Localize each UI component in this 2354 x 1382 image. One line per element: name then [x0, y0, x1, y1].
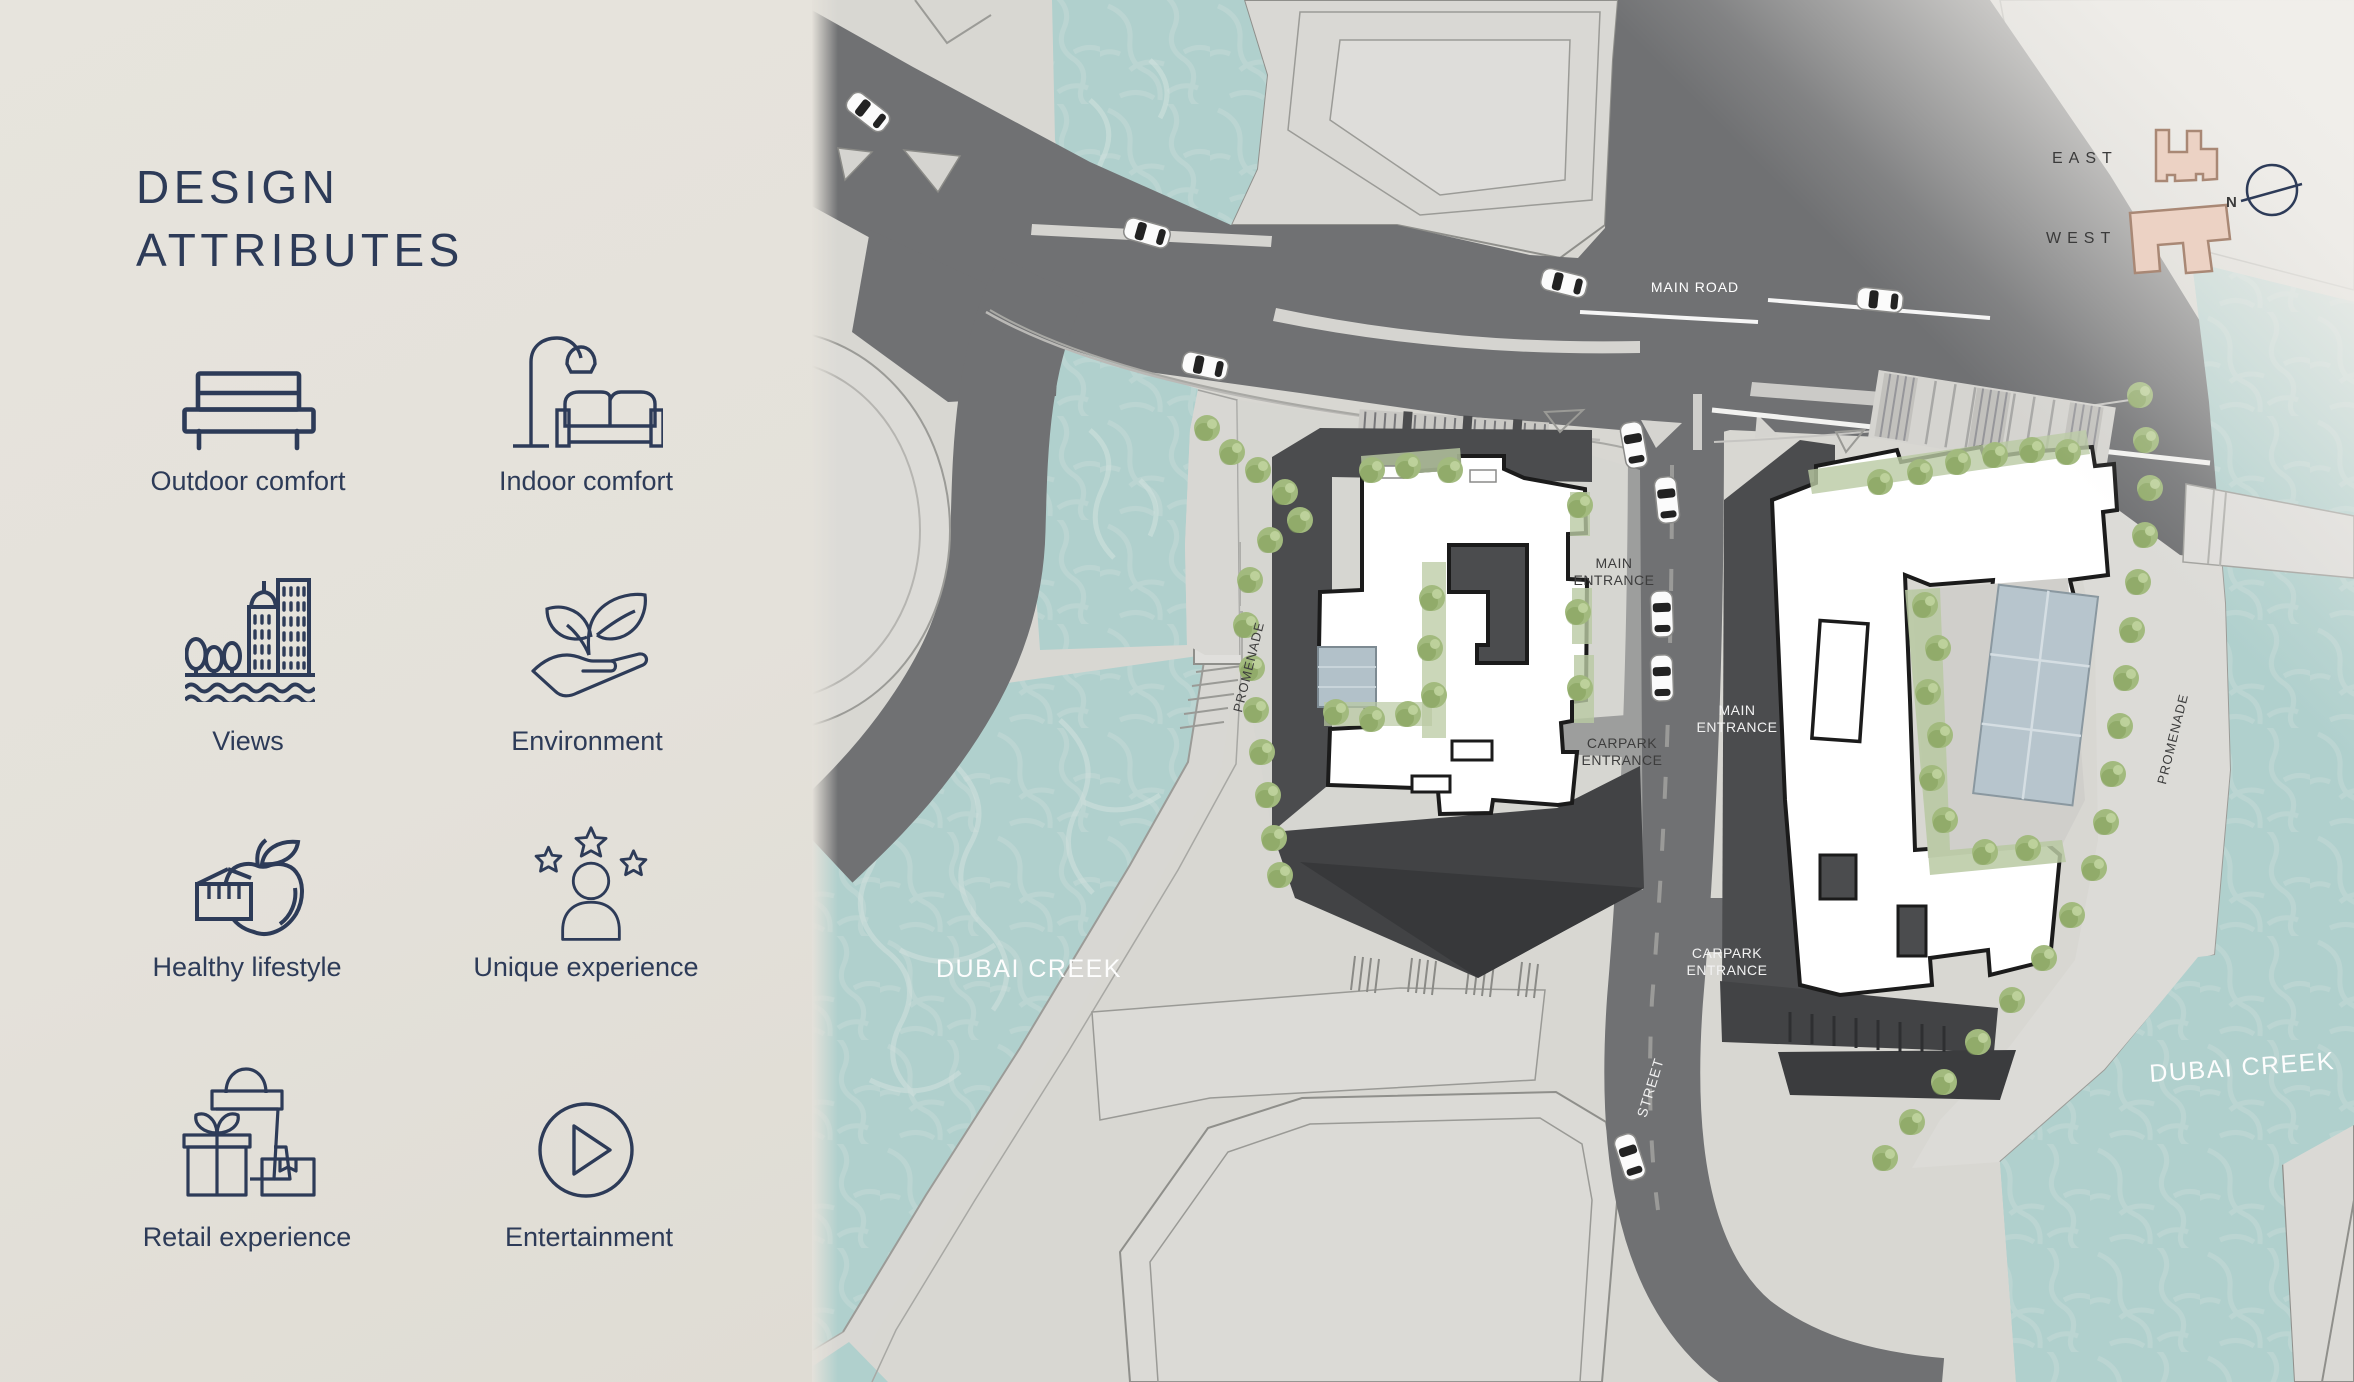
- svg-text:CARPARK: CARPARK: [1692, 945, 1762, 961]
- svg-text:ENTRANCE: ENTRANCE: [1581, 752, 1662, 768]
- svg-text:ENTRANCE: ENTRANCE: [1696, 719, 1777, 735]
- svg-text:ENTRANCE: ENTRANCE: [1573, 572, 1654, 588]
- svg-text:WEST: WEST: [2046, 230, 2116, 247]
- svg-text:DUBAI CREEK: DUBAI CREEK: [936, 955, 1122, 983]
- svg-text:MAIN: MAIN: [1719, 702, 1756, 718]
- svg-text:MAIN: MAIN: [1596, 555, 1633, 571]
- svg-text:EAST: EAST: [2052, 150, 2118, 167]
- svg-text:MAIN ROAD: MAIN ROAD: [1651, 279, 1739, 295]
- svg-text:CARPARK: CARPARK: [1587, 735, 1657, 751]
- svg-text:N: N: [2226, 194, 2237, 211]
- svg-text:ENTRANCE: ENTRANCE: [1686, 962, 1767, 978]
